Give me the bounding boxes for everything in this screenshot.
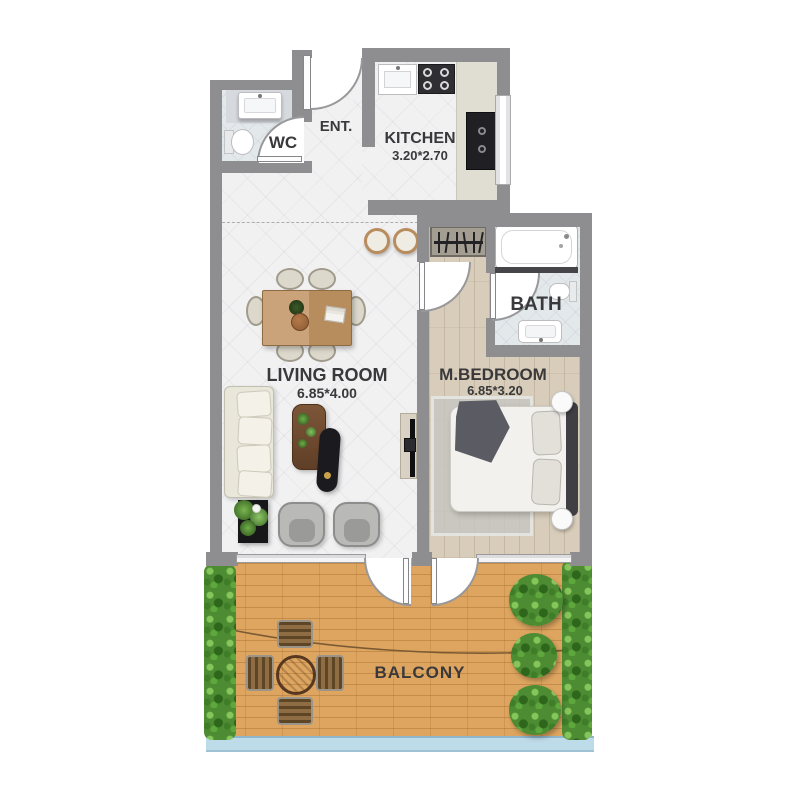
bath-vanity-sink (518, 320, 562, 343)
balcony-window-band (236, 554, 366, 563)
sink-basin-icon (244, 98, 276, 113)
dining-chair (308, 268, 336, 290)
room-label-entrance: ENT. (320, 119, 353, 134)
wall (486, 345, 592, 357)
potted-plant (238, 500, 268, 543)
room-dims-bedroom: 6.85*3.20 (467, 384, 523, 397)
room-label-balcony: BALCONY (374, 664, 465, 681)
kitchen-sink-unit (378, 64, 417, 95)
balcony-table (276, 655, 316, 695)
bush-icon (509, 574, 563, 626)
media-box-icon (404, 438, 416, 452)
hedge-right (562, 560, 592, 740)
hob-icon (478, 127, 486, 135)
floor-plan: ENT. WC KITCHEN 3.20*2.70 LIVING ROOM 6.… (0, 0, 800, 800)
ottoman (316, 427, 341, 492)
balcony-door-living-leaf (403, 558, 409, 604)
bath-toilet-tank (569, 281, 577, 302)
bush-icon (511, 633, 557, 678)
zone-dashed-line (222, 222, 418, 223)
hanger-icon (438, 232, 440, 253)
sink-basin-icon (525, 325, 556, 338)
plant-icon (298, 439, 307, 448)
bed-headboard (566, 402, 578, 516)
table-books-icon (324, 306, 346, 324)
balcony-chair (316, 655, 344, 691)
table-bowl-icon (291, 313, 309, 331)
wc-toilet-bowl (231, 129, 254, 155)
armchair (278, 502, 325, 547)
faucet-icon (564, 234, 569, 239)
bar-stool (393, 228, 419, 254)
wall (417, 215, 429, 262)
faucet-icon (539, 338, 543, 342)
plant-icon (306, 427, 316, 437)
wardrobe-rail-icon (434, 241, 483, 244)
burner-icon (440, 81, 449, 90)
wall (362, 55, 375, 147)
bar-stool (364, 228, 390, 254)
sink-basin-icon (384, 71, 411, 88)
bed-pillow (531, 410, 562, 455)
faucet-icon (258, 94, 262, 98)
armchair (333, 502, 380, 547)
balcony-window-band (476, 554, 572, 563)
bathtub (495, 225, 578, 269)
wall (417, 310, 429, 566)
balcony-chair (277, 697, 313, 725)
armchair-cushion (344, 519, 370, 542)
stove (418, 64, 455, 94)
room-label-wc: WC (269, 134, 297, 151)
plant-icon (297, 413, 309, 425)
armchair-cushion (289, 519, 315, 542)
wall (570, 552, 592, 566)
nightstand (551, 508, 573, 530)
wall (210, 80, 222, 566)
sofa (224, 386, 274, 498)
wall (362, 48, 510, 62)
sofa-cushion (236, 390, 272, 418)
bath-door-leaf (490, 273, 496, 319)
wc-sink (238, 92, 282, 119)
wall (418, 213, 592, 227)
sofa-cushion (237, 470, 273, 498)
dining-chair (276, 268, 304, 290)
wall (580, 213, 592, 566)
kitchen-window (495, 95, 511, 185)
sofa-cushion (237, 416, 272, 446)
gold-knob-icon (324, 472, 331, 479)
hanger-icon (473, 232, 475, 253)
burner-icon (423, 68, 432, 77)
nightstand (551, 391, 573, 413)
balcony-door-bedroom-leaf (431, 558, 437, 604)
room-label-bedroom: M.BEDROOM (439, 366, 547, 383)
bed-pillow (531, 458, 562, 505)
burner-icon (440, 68, 449, 77)
wall (210, 80, 302, 90)
wall (206, 552, 238, 566)
balcony-chair (277, 620, 313, 648)
wardrobe (430, 226, 487, 257)
flower-icon (252, 504, 261, 513)
wc-door-leaf (257, 156, 302, 162)
wall (486, 222, 495, 273)
entrance-door-leaf (303, 55, 311, 110)
burner-icon (423, 81, 432, 90)
bedroom-door-leaf (419, 262, 425, 310)
room-label-living: LIVING ROOM (267, 366, 388, 384)
balcony-chair (246, 655, 274, 691)
hedge-left (204, 564, 236, 740)
room-dims-kitchen: 3.20*2.70 (392, 149, 448, 162)
plant-leaves-icon (240, 520, 256, 536)
faucet-icon (396, 66, 400, 70)
hanger-icon (456, 232, 458, 253)
kitchen-tall-unit (466, 112, 497, 170)
bush-icon (509, 685, 561, 735)
dining-table (262, 290, 352, 346)
room-dims-living: 6.85*4.00 (297, 386, 357, 400)
faucet-icon (559, 244, 563, 248)
wall (412, 552, 432, 566)
room-label-kitchen: KITCHEN (384, 131, 455, 147)
room-label-bath: BATH (510, 295, 561, 314)
hob-icon (478, 145, 486, 153)
